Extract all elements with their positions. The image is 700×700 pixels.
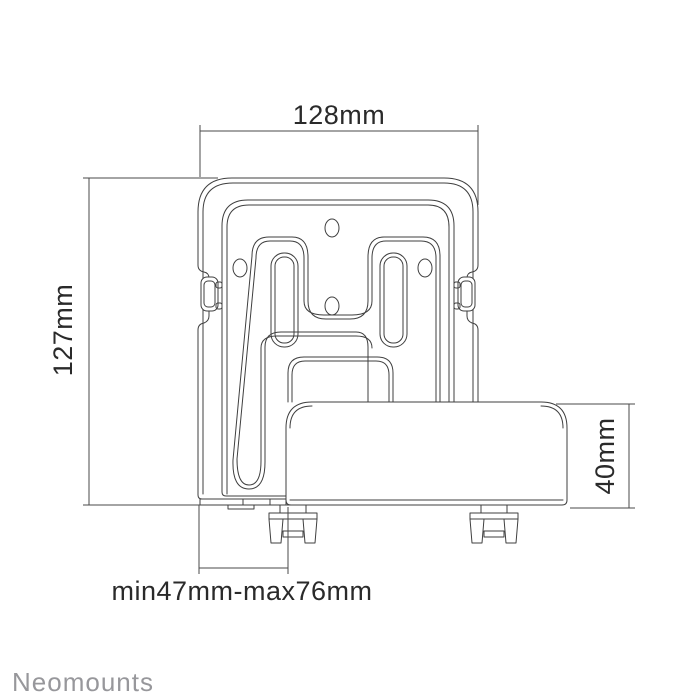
- hole-top-center: [325, 219, 339, 237]
- foot-leg-right: [303, 519, 317, 543]
- hole-left: [233, 259, 247, 277]
- h-channel-valley-bevel: [256, 241, 436, 402]
- foot-stem: [481, 505, 507, 513]
- dimension-bottom-depth: min47mm-max76mm: [111, 505, 372, 606]
- side-tab-right: [454, 277, 475, 311]
- slot-inner: [384, 257, 403, 343]
- holder-box: [286, 402, 567, 505]
- foot-leg-left: [269, 519, 283, 543]
- tongue-bevel: [292, 361, 389, 402]
- foot-bar: [269, 513, 317, 519]
- hole-right: [418, 259, 432, 277]
- h-channel-valley: [252, 237, 440, 402]
- dim-label-right-height: 40mm: [590, 417, 620, 494]
- dim-label-bottom-depth: min47mm-max76mm: [111, 576, 372, 606]
- mounting-holes: [233, 219, 432, 315]
- technical-drawing: 128mm 127mm 40mm min47mm-max76mm Neomoun…: [0, 0, 700, 700]
- box-outline: [286, 402, 567, 505]
- foot-bar: [470, 513, 518, 519]
- hole-mid-center: [325, 297, 339, 315]
- side-tab-left: [201, 277, 222, 311]
- screw-slot-right: [380, 253, 407, 347]
- dimension-left-height: 127mm: [48, 178, 218, 505]
- dimension-drawing-page: 128mm 127mm 40mm min47mm-max76mm Neomoun…: [0, 0, 700, 700]
- foot-stem: [280, 505, 306, 513]
- brand-logo: Neomounts: [12, 667, 154, 697]
- tongue-outer: [288, 357, 393, 402]
- flange-tab: [228, 505, 254, 509]
- dim-label-left-height: 127mm: [48, 284, 78, 377]
- foot-crossbar: [283, 531, 303, 537]
- slot-inner: [275, 257, 294, 343]
- clip-foot-left: [269, 505, 317, 543]
- foot-leg-right: [504, 519, 518, 543]
- clip-foot-right: [470, 505, 518, 543]
- dimension-right-height: 40mm: [556, 404, 635, 508]
- dimension-top-width: 128mm: [200, 100, 478, 205]
- foot-crossbar: [484, 531, 504, 537]
- bottom-flange: [200, 499, 286, 509]
- screw-slot-left: [271, 253, 298, 347]
- foot-leg-left: [470, 519, 484, 543]
- dim-label-top-width: 128mm: [293, 100, 386, 130]
